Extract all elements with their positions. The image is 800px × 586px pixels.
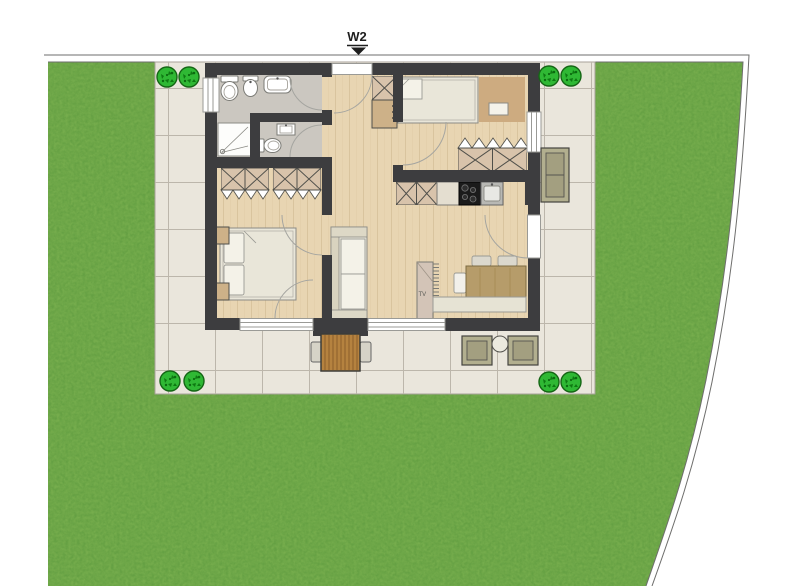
bush-icon [539,372,559,392]
wall-segment [205,63,217,78]
toilet [221,82,238,101]
window [203,78,219,112]
patio-chair [360,342,371,362]
apartment: TV [203,63,541,336]
floor-plan-image: TV [0,0,800,586]
wardrobe-cell [245,168,269,190]
sofa-cushion [341,239,365,274]
site-plan-canvas: TV [0,0,800,586]
lounge-chair-cushion [513,341,533,360]
bush-icon [160,371,180,391]
wall-segment [525,170,540,205]
stove [459,182,481,205]
dining-chair [498,256,517,266]
bench [433,297,526,312]
bush-icon [157,67,177,87]
patio-door-opening [528,215,541,258]
wall-segment [322,63,332,77]
sofa-cushion [341,274,365,309]
wardrobe-cell [273,168,297,190]
wc-faucet-icon [285,125,287,127]
wall-segment [217,157,332,168]
faucet-icon [491,183,493,185]
stove-burner [470,196,476,202]
window [368,319,445,331]
entrance-arrow-icon [351,48,366,56]
wall-segment [322,255,332,318]
wall-segment [205,112,217,318]
wall-segment [393,63,403,122]
wc-toilet [264,139,281,153]
sofa-backrest [331,227,339,320]
wardrobe-cell [297,168,321,190]
bidet-faucet-icon [249,81,251,83]
dining-table [466,266,526,301]
dining-chair [472,256,491,266]
wall-segment [445,318,540,331]
kitchen-cabinet-cell [396,182,417,205]
stove-burner [462,194,467,199]
kitchen-cabinet-cell [417,182,438,205]
wall-segment [250,113,332,122]
tv-label: TV [419,292,427,298]
unit-label: W2 [347,29,367,44]
stove-burner [470,187,475,192]
sofa-armrest [331,227,367,237]
window [240,319,313,331]
nightstand [489,103,508,115]
bush-icon [561,372,581,392]
entrance-marker: W2 [347,29,368,55]
wardrobe-cell [221,168,245,190]
wall-segment [528,258,540,318]
bush-icon [561,66,581,86]
kitchen-sink-basin [484,186,500,201]
kitchen-counter [437,182,459,205]
lounge-chair-cushion [467,341,487,360]
kitchen [396,182,503,205]
washbasin-faucet-icon [276,77,278,79]
wall-segment [250,122,260,157]
bush-icon [179,67,199,87]
dining-chair [454,273,466,293]
entrance-opening [332,64,372,75]
wall-segment [205,318,240,330]
tv-unit [417,262,433,320]
wall-segment [395,170,540,182]
bush-icon [539,66,559,86]
bed-pillow [400,79,422,99]
window [527,112,541,152]
side-table [492,336,508,352]
wall-segment [205,63,332,75]
wall-segment [528,63,540,112]
wardrobe-cell [458,148,493,172]
wardrobe-cell [493,148,528,172]
stove-burner [462,185,468,191]
bush-icon [184,371,204,391]
